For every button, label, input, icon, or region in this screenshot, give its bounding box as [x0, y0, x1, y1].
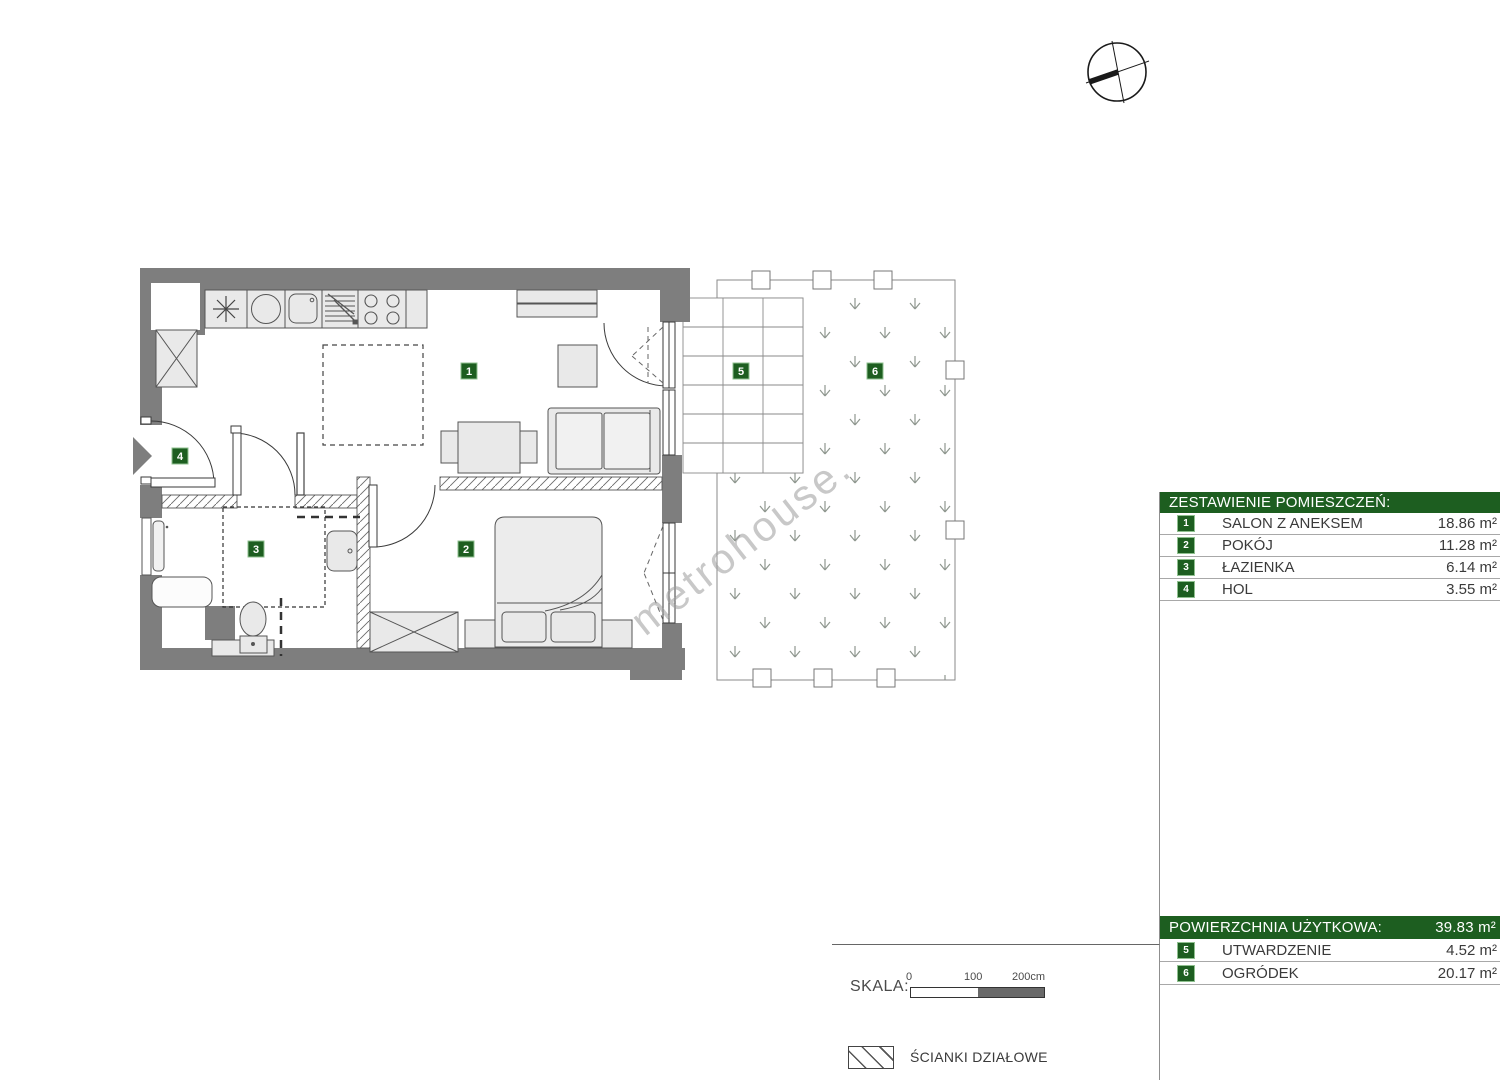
side-table — [558, 345, 597, 387]
table-row: 4 HOL 3.55 m² — [1160, 579, 1500, 601]
room-number-badge: 6 — [1177, 965, 1195, 982]
room-label-3: 3 — [248, 541, 264, 557]
table-row: 5 UTWARDZENIE 4.52 m² — [1160, 939, 1500, 962]
room-number-badge: 4 — [1177, 581, 1195, 598]
room-label-1: 1 — [461, 363, 477, 379]
scale-bar — [910, 987, 1045, 998]
washbasin — [327, 531, 357, 571]
panel-tail — [1160, 985, 1500, 1015]
scale-label: SKALA: — [850, 978, 909, 996]
balcony-door — [604, 322, 675, 388]
terrace-tiles — [683, 298, 803, 473]
shower-area-dashed — [223, 507, 325, 607]
bath-window-frame — [142, 518, 151, 575]
room-area: 11.28 m² — [1439, 537, 1500, 554]
room-number-badge: 3 — [1177, 559, 1195, 576]
room-area: 6.14 m² — [1446, 559, 1500, 576]
svg-text:4: 4 — [177, 451, 184, 463]
rooms-table-title: ZESTAWIENIE POMIESZCZEŃ: — [1169, 492, 1390, 513]
bathtub — [152, 577, 212, 607]
table-row: 2 POKÓJ 11.28 m² — [1160, 535, 1500, 557]
room-name: UTWARDZENIE — [1222, 942, 1331, 959]
room-area: 20.17 m² — [1438, 965, 1500, 982]
table-row: 6 OGRÓDEK 20.17 m² — [1160, 962, 1500, 985]
dining-set — [441, 422, 537, 473]
living-room-window — [663, 390, 675, 455]
kitchen-island-dashed — [323, 345, 423, 445]
table-row: 1 SALON Z ANEKSEM 18.86 m² — [1160, 513, 1500, 535]
area-summary-panel: ZESTAWIENIE POMIESZCZEŃ: 1 SALON Z ANEKS… — [1159, 492, 1500, 1015]
room-name: ŁAZIENKA — [1222, 559, 1295, 576]
partition-walls-label: ŚCIANKI DZIAŁOWE — [910, 1049, 1048, 1065]
bedroom-door — [369, 485, 435, 547]
compass-icon — [1086, 41, 1149, 103]
radiator — [153, 521, 168, 571]
scale-bar-dark-segment — [978, 988, 1044, 997]
room-name: SALON Z ANEKSEM — [1222, 515, 1363, 532]
bathroom-door — [231, 426, 295, 495]
partition-walls-legend: ŚCIANKI DZIAŁOWE — [832, 1028, 1160, 1080]
room-label-5: 5 — [733, 363, 749, 379]
room-name: POKÓJ — [1222, 537, 1273, 554]
scale-legend: SKALA: 0 100 200cm — [832, 944, 1160, 1029]
svg-text:3: 3 — [253, 544, 259, 556]
room-number-badge: 1 — [1177, 515, 1195, 532]
room-name: OGRÓDEK — [1222, 965, 1299, 982]
hall-wardrobe — [156, 330, 197, 387]
bedroom-wardrobe — [370, 612, 458, 652]
svg-text:2: 2 — [463, 544, 469, 556]
room-label-6: 6 — [867, 363, 883, 379]
partition-hatch-swatch — [848, 1046, 894, 1069]
room-number-badge: 2 — [1177, 537, 1195, 554]
svg-text:6: 6 — [872, 366, 878, 378]
room-label-2: 2 — [458, 541, 474, 557]
room-area: 3.55 m² — [1446, 581, 1500, 598]
scale-tick-0: 0 — [906, 971, 912, 983]
tv-cabinet — [517, 290, 597, 317]
summary-table-header: POWIERZCHNIA UŻYTKOWA: 39.83 m² — [1160, 916, 1500, 939]
sofa — [548, 408, 660, 474]
svg-text:1: 1 — [466, 366, 472, 378]
panel-spacer — [1160, 601, 1500, 916]
total-usable-area: 39.83 m² — [1435, 916, 1500, 939]
floorplan-page: { "watermark_text": "metrohouse.", "plan… — [0, 0, 1500, 1080]
kitchen-sink — [289, 294, 317, 323]
entrance-arrow — [133, 437, 152, 475]
scale-tick-100: 100 — [964, 971, 982, 983]
room-name: HOL — [1222, 581, 1253, 598]
room-number-badge: 5 — [1177, 942, 1195, 959]
svg-text:5: 5 — [738, 366, 744, 378]
room-area: 18.86 m² — [1438, 515, 1500, 532]
bed — [495, 517, 602, 647]
room-area: 4.52 m² — [1446, 942, 1500, 959]
wall-stub — [297, 433, 304, 495]
floor-plan: 1 2 3 4 5 6 metrohouse. — [0, 0, 1160, 1080]
summary-table-title: POWIERZCHNIA UŻYTKOWA: — [1169, 916, 1382, 939]
shaft-niche — [151, 283, 200, 330]
room-label-4: 4 — [172, 448, 188, 464]
table-row: 3 ŁAZIENKA 6.14 m² — [1160, 557, 1500, 579]
scale-tick-200: 200cm — [1012, 971, 1045, 983]
toilet — [240, 602, 267, 653]
rooms-table-header: ZESTAWIENIE POMIESZCZEŃ: — [1160, 492, 1500, 513]
